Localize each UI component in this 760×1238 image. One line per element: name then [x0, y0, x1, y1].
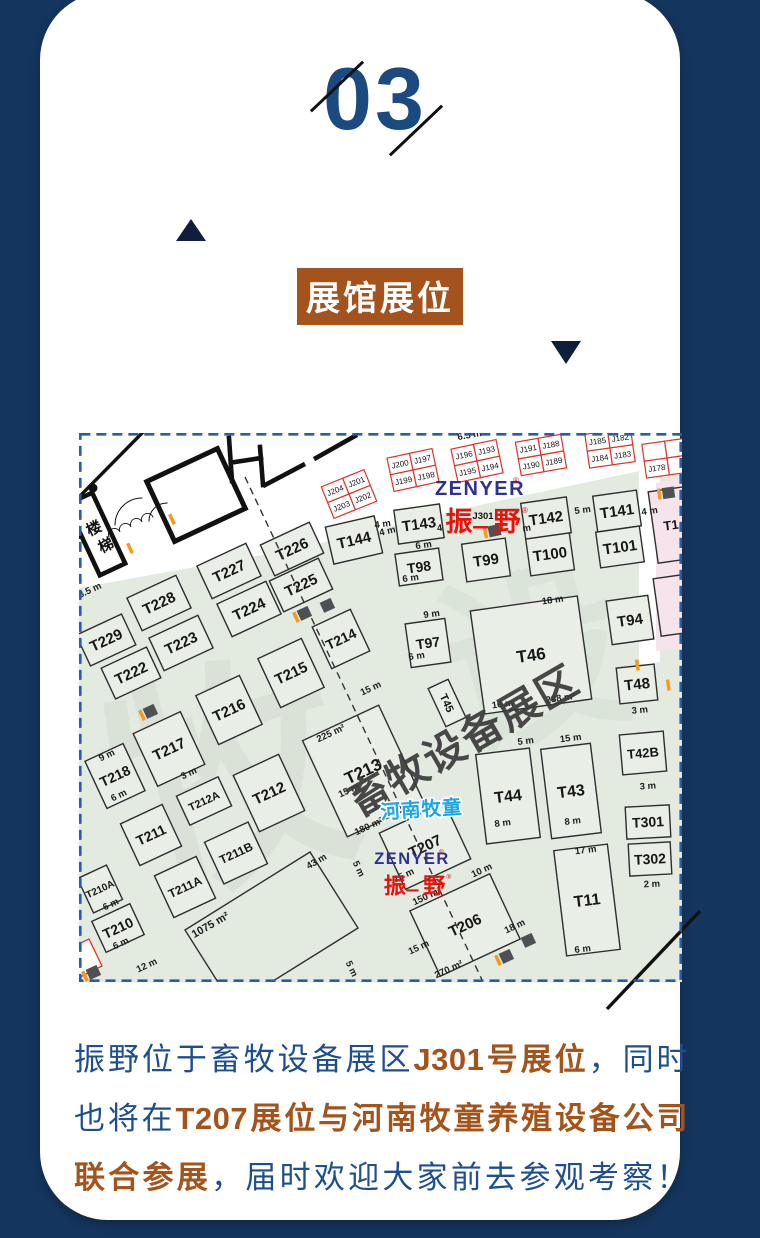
footer-segment: ，同时 [589, 1042, 688, 1077]
section-title-wrap: 展馆展位 [0, 268, 760, 325]
svg-text:T11: T11 [573, 891, 602, 911]
booth-T141: T141 [593, 490, 642, 532]
dim-label: 8 m [494, 817, 512, 830]
footer-segment: T207展位与河南牧童养殖设备公司 [176, 1101, 689, 1136]
footer-line: 联合参展，届时欢迎大家前去参观考察！ [74, 1148, 688, 1207]
dim-label: 5 m [517, 735, 535, 748]
dim-label: 3 m [639, 780, 656, 792]
dim-label: m [522, 522, 532, 534]
dim-label: 2 m [643, 879, 660, 891]
svg-text:T97: T97 [415, 633, 441, 652]
triangle-down-icon [551, 341, 581, 364]
footer-segment: 联合参展 [74, 1160, 211, 1195]
booth-T101: T101 [596, 526, 645, 568]
footer-segment: 振野位于畜牧设备展区 [74, 1042, 413, 1077]
entrance-marker [657, 487, 675, 500]
footer-line: 也将在T207展位与河南牧童养殖设备公司 [74, 1089, 688, 1148]
svg-text:®: ® [513, 476, 519, 485]
dim-label: 9 m [423, 608, 441, 621]
dim-label: 6 m [574, 943, 592, 956]
floorplan-map: 牧设 T226T225T227T224T228T223T229T222T214T… [79, 433, 682, 982]
j-booth-group: J200J197J199J198 [387, 449, 439, 492]
booth-T42B: T42B [619, 731, 666, 775]
j-booth-group: J178 [642, 438, 692, 478]
entrance-marker [126, 543, 134, 554]
svg-text:T42B: T42B [627, 744, 660, 762]
svg-text:T48: T48 [623, 675, 650, 695]
booth-T44: T44 [476, 748, 541, 844]
dim-label: 8 m [564, 815, 582, 828]
svg-text:®: ® [439, 848, 444, 856]
dim-label: 4 m [641, 505, 659, 518]
svg-text:®: ® [522, 506, 528, 515]
svg-text:野: 野 [494, 507, 521, 537]
svg-text:®: ® [446, 873, 451, 881]
dim-label: 5 m [574, 504, 592, 517]
dim-label: 3 m [631, 704, 648, 716]
booth-T301: T301 [625, 805, 671, 839]
triangle-up-icon [176, 219, 206, 241]
svg-text:野: 野 [423, 874, 445, 899]
booth-unlabeled [653, 574, 697, 636]
j-booth-group: J191J188J190J189 [515, 434, 566, 475]
booth-T302: T302 [628, 842, 672, 876]
footer-line: 振野位于畜牧设备展区J301号展位，同时 [74, 1030, 688, 1089]
svg-text:振: 振 [384, 874, 407, 899]
footer-segment: ，届时欢迎大家前去参观考察！ [211, 1160, 688, 1195]
svg-text:ZENYER: ZENYER [435, 478, 525, 500]
svg-text:T43: T43 [556, 782, 586, 802]
footer-paragraph: 振野位于畜牧设备展区J301号展位，同时也将在T207展位与河南牧童养殖设备公司… [74, 1030, 688, 1207]
booth-T99: T99 [462, 538, 511, 582]
svg-text:T301: T301 [632, 813, 665, 831]
j-booth-group: J196J193J195J194 [451, 440, 503, 483]
dim-label: 6 m [408, 650, 426, 663]
footer-segment: J301号展位 [413, 1042, 588, 1077]
dim-label: 6 m [415, 539, 433, 552]
booth-T94: T94 [606, 595, 654, 644]
svg-text:T1: T1 [662, 517, 679, 534]
section-title: 展馆展位 [297, 268, 463, 325]
svg-text:T302: T302 [634, 850, 667, 868]
poster-page: { "page": {"background": "#14355e", "car… [0, 0, 760, 1238]
footer-segment: 也将在 [74, 1101, 176, 1136]
svg-text:振: 振 [446, 507, 473, 537]
booth-code-j301: J301 [472, 511, 494, 522]
j-booth-group: J204J201J203J202 [321, 470, 376, 519]
dim-label: 6 m [402, 572, 420, 585]
svg-text:T99: T99 [472, 551, 500, 571]
svg-text:T46: T46 [515, 644, 547, 667]
section-number: 03 [295, 44, 455, 154]
svg-text:T44: T44 [493, 787, 523, 807]
